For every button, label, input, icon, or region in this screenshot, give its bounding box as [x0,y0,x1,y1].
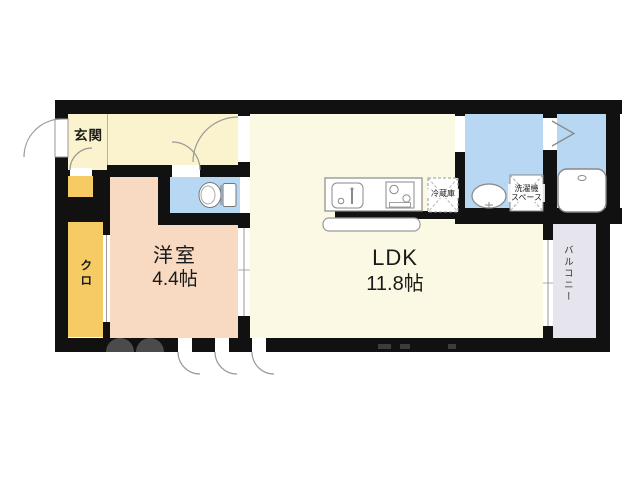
washroom-door-opening [455,116,465,152]
window-swing-arc-3 [252,352,274,374]
toilet-icon [199,183,236,208]
wall-washroom-bathroom [543,100,557,218]
kitchen-sink [332,183,363,208]
ldk-name: LDK [260,245,530,270]
washer-label-line2: スペース [508,193,545,202]
closet-label: クロ [78,259,92,289]
ldk-size: 11.8帖 [260,273,530,296]
window-swing-arc-2 [215,352,237,374]
wall-balcony-right [596,208,610,352]
west-room-name: 洋室 [110,245,240,268]
floor-plan-drawing [0,0,640,480]
sink-faucet-knob [351,188,354,191]
hallway-floor [107,114,240,165]
hall-ldk-door-opening [238,116,250,162]
toilet-door-opening [172,165,200,177]
washer-label-line1: 洗濯機 [508,184,545,193]
kitchen-island-front [323,218,420,231]
floor-plan: 玄関 洋室 4.4帖 LDK 11.8帖 クロ バルコニー 冷蔵庫 洗濯機 スペ… [0,0,640,480]
wall-toilet-bottom [158,213,250,225]
window-opening-2 [215,338,229,352]
washbasin-icon [472,184,506,208]
toilet-tank [223,184,236,207]
fridge-label: 冷蔵庫 [427,189,459,198]
shoe-cabinet-door-opening [70,168,92,177]
watermark-mark-3 [448,344,456,349]
watermark-mark-2 [400,344,410,349]
bathtub-drain [578,176,586,181]
genkan-label: 玄関 [74,128,103,144]
window-opening-3 [252,338,266,352]
kitchen-unit [323,178,422,231]
shoe-cabinet [68,176,93,197]
entrance-door-leaf [55,119,68,157]
watermark-mark-1 [378,344,391,349]
window-swing-arc-1 [178,352,200,374]
balcony-label: バルコニー [561,245,572,303]
washer-space-label: 洗濯機 スペース [508,184,545,202]
wall-right-upper [606,100,620,224]
west-room-size: 4.4帖 [110,269,240,291]
kitchen-stove [386,182,414,208]
window-opening-1 [178,338,192,352]
wall-top [55,100,622,114]
